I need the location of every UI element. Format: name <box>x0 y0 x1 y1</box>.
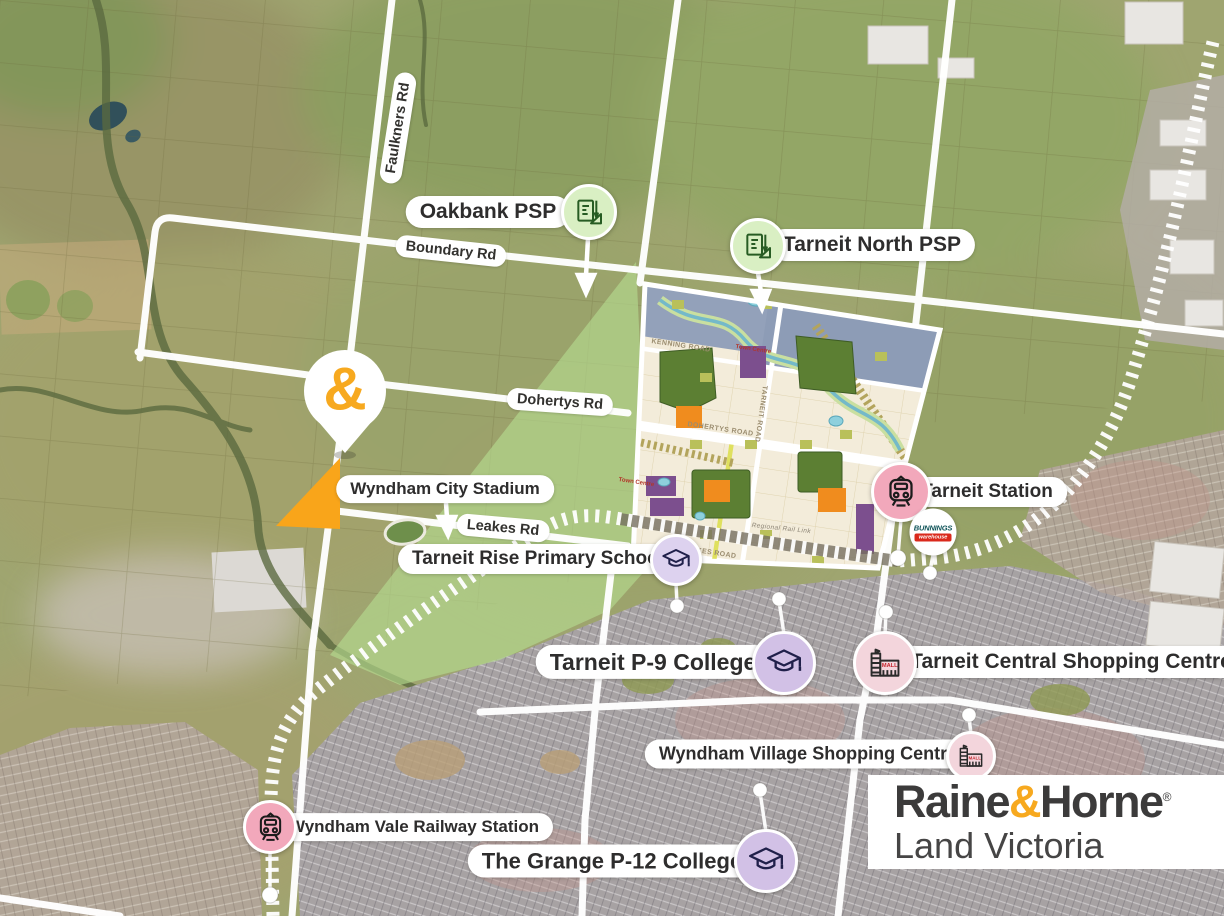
bunnings-wordmark: BUNNINGS <box>914 523 952 532</box>
registered-mark: ® <box>1163 790 1172 804</box>
train-icon <box>243 800 297 854</box>
label-tarneit-p9-college: Tarneit P-9 College <box>536 645 771 679</box>
label-wyndham-city-stadium: Wyndham City Stadium <box>336 475 554 503</box>
label-wyndham-vale-station: Wyndham Vale Railway Station <box>275 813 553 841</box>
graduation-cap-icon <box>734 829 798 893</box>
label-tarneit-central-shopping: Tarneit Central Shopping Centre <box>896 646 1224 678</box>
logo-ampersand: & <box>1009 776 1040 827</box>
label-tarneit-rise-primary: Tarneit Rise Primary School <box>398 544 678 574</box>
label-oakbank-psp: Oakbank PSP <box>406 196 571 228</box>
mall-icon: MALL <box>946 731 996 781</box>
raine-and-horne-logo: Raine&Horne® Land Victoria <box>868 775 1224 869</box>
label-wyndham-village-shopping: Wyndham Village Shopping Centre <box>645 740 971 769</box>
logo-division: Land Victoria <box>894 826 1224 866</box>
psp-plan-icon <box>730 218 786 274</box>
graduation-cap-icon <box>752 631 816 695</box>
graduation-cap-icon <box>650 534 702 586</box>
logo-wordmark: Raine&Horne® <box>894 779 1224 824</box>
label-tarneit-north-psp: Tarneit North PSP <box>769 229 975 261</box>
label-grange-college: The Grange P-12 College <box>468 844 756 877</box>
brand-pin-ampersand: & <box>323 355 366 424</box>
marketing-map: & Faulkners Rd Boundary Rd Dohertys Rd L… <box>0 0 1224 916</box>
label-tarneit-station: Tarneit Station <box>907 477 1067 507</box>
svg-text:MALL: MALL <box>969 755 982 760</box>
mall-icon: MALL <box>853 631 917 695</box>
psp-plan-icon <box>561 184 617 240</box>
bunnings-warehouse-tag: warehouse <box>915 533 952 541</box>
bunnings-warehouse-badge: BUNNINGS warehouse <box>910 509 957 556</box>
svg-text:MALL: MALL <box>882 663 898 669</box>
